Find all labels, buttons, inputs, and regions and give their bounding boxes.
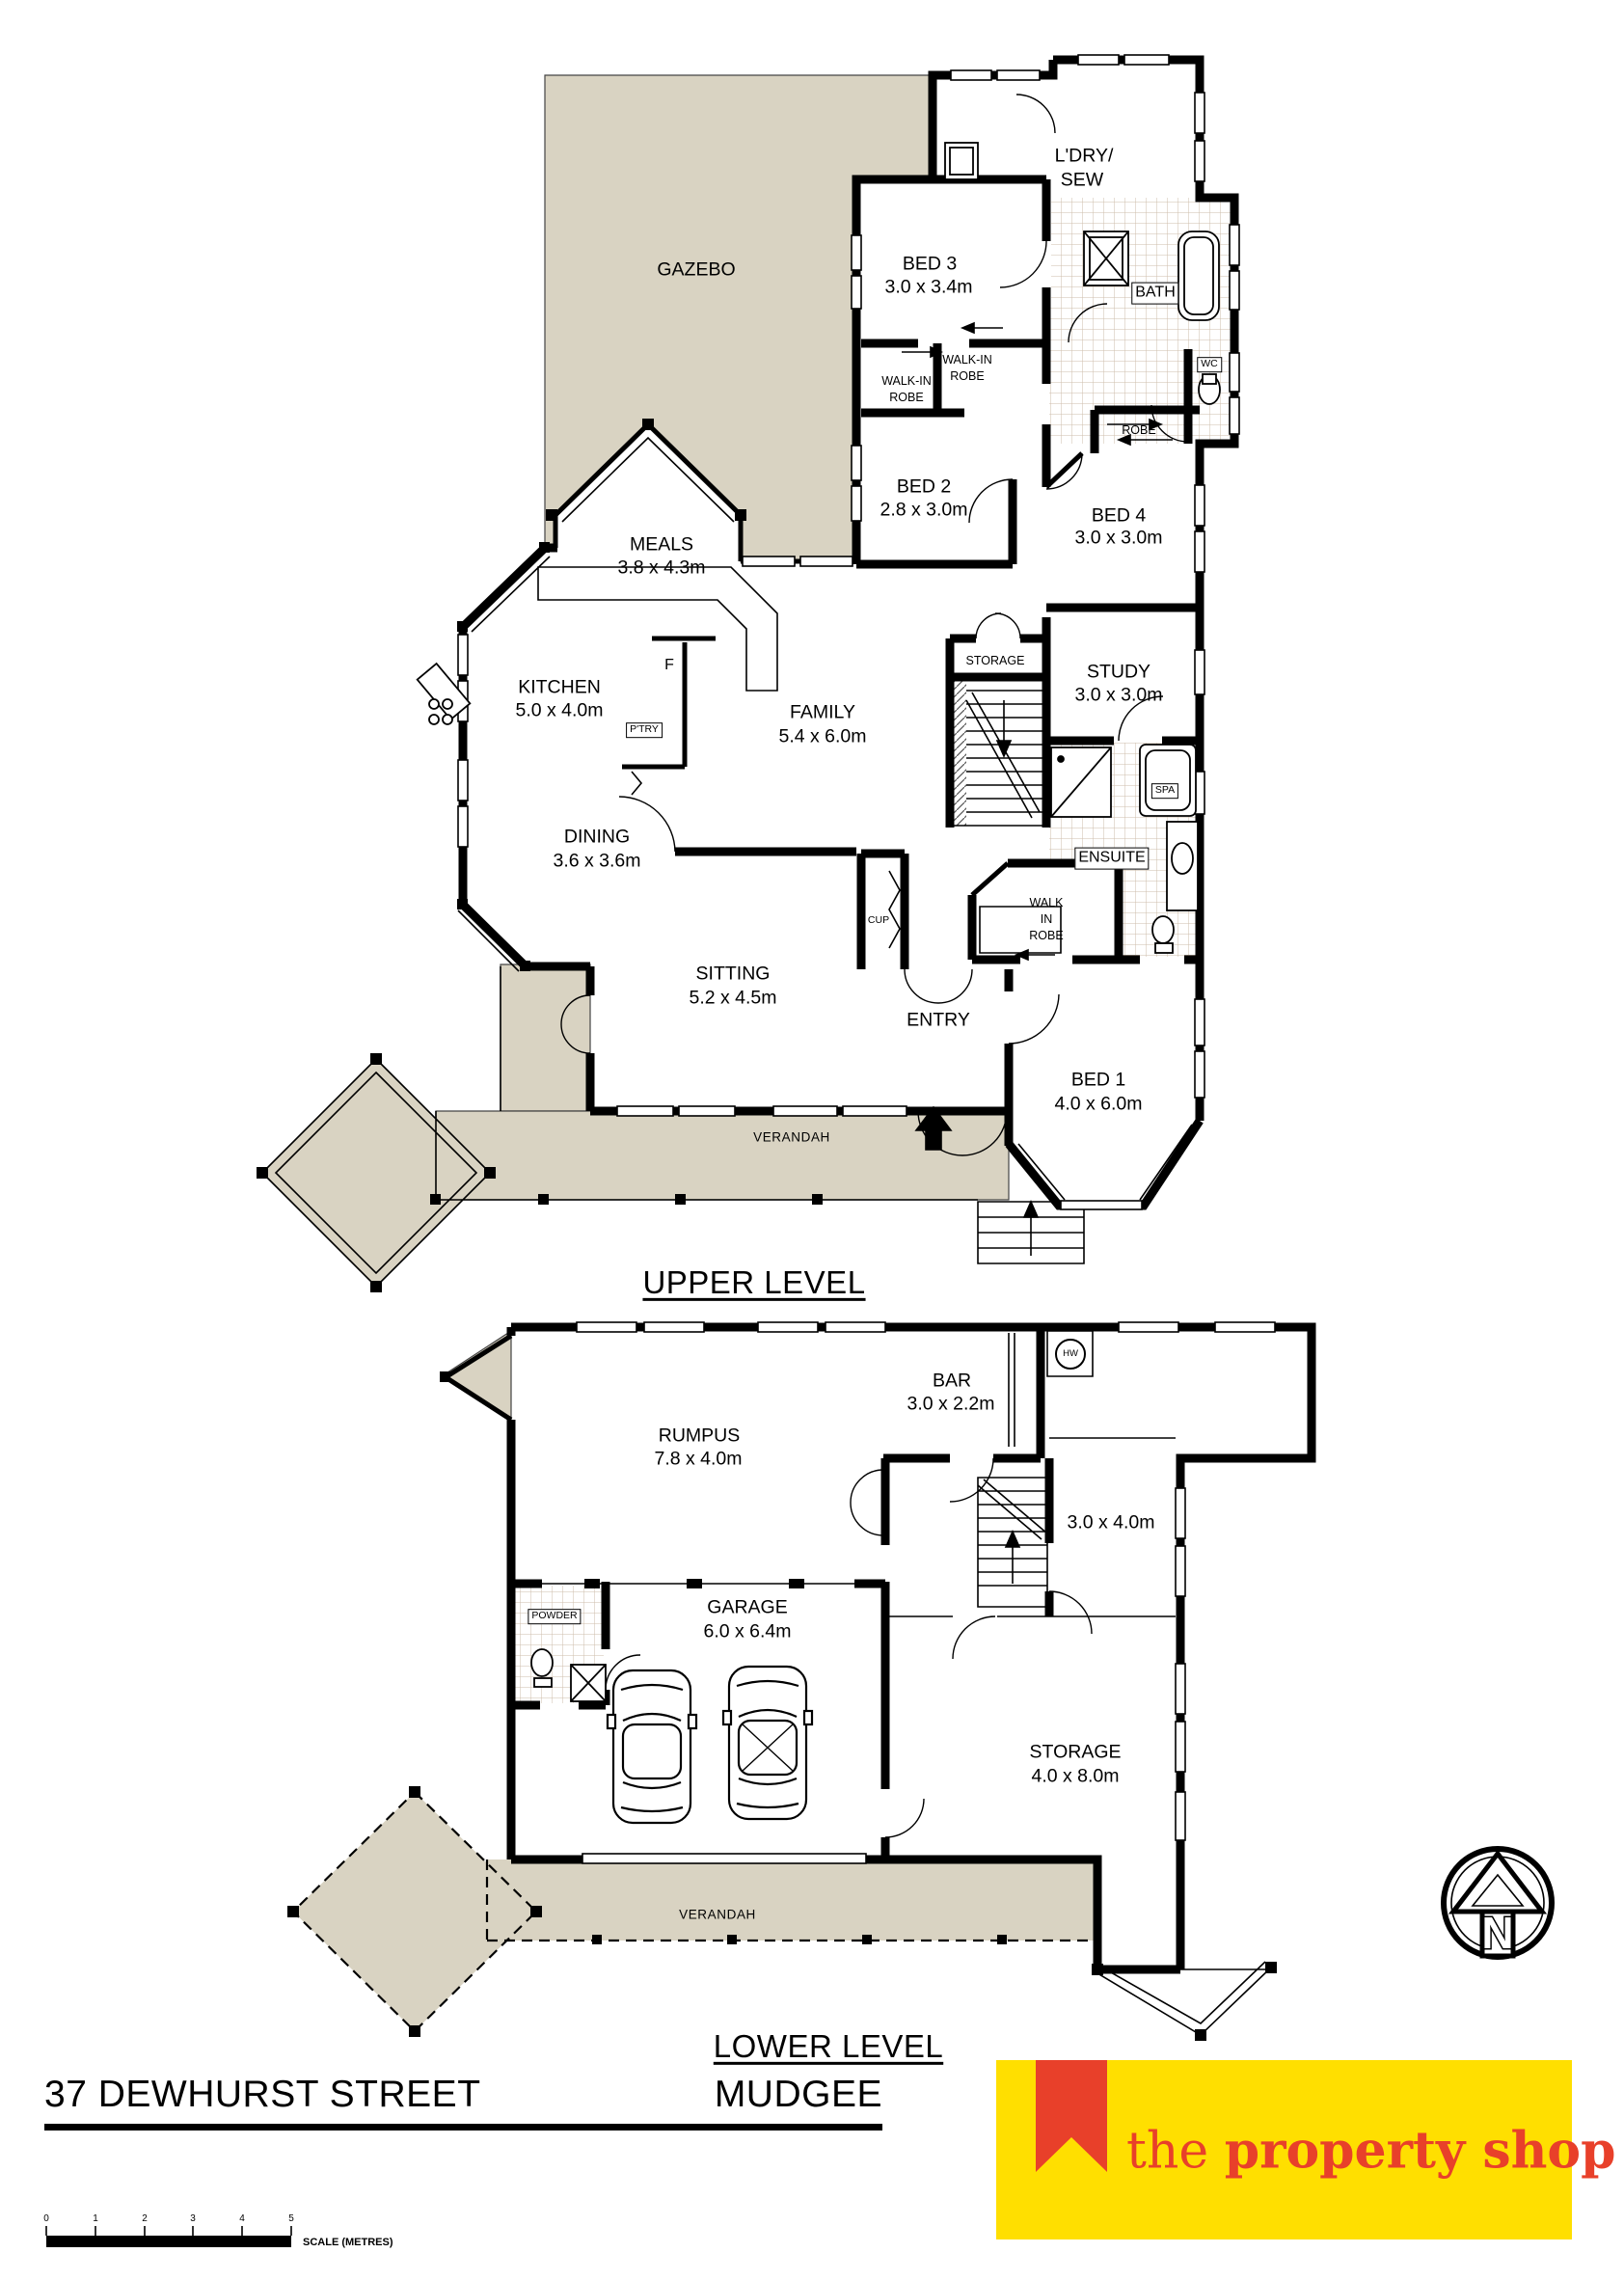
room-dims-bed4: 3.0 x 3.0m xyxy=(1074,528,1162,548)
room-label-ensuite: ENSUITE xyxy=(1074,848,1149,870)
brand-wordmark: the property shop xyxy=(1126,2122,1615,2181)
room-dims-sitting: 5.2 x 4.5m xyxy=(689,988,776,1008)
room-label-bed3: BED 3 xyxy=(903,254,957,274)
room-label-verandah-upper: VERANDAH xyxy=(753,1131,830,1146)
room-label-walkin-robe-bed2-line2: ROBE xyxy=(889,392,923,405)
scale-tick-2: 2 xyxy=(142,2213,148,2224)
room-label-dining: DINING xyxy=(564,827,630,847)
room-label-walkin-robe-bed3-line1: WALK-IN xyxy=(942,354,992,367)
room-dims-study: 3.0 x 3.0m xyxy=(1074,685,1162,705)
room-label-entry: ENTRY xyxy=(907,1010,970,1030)
room-label-bath: BATH xyxy=(1131,283,1178,305)
scale-tick-1: 1 xyxy=(93,2213,98,2224)
scale-caption: SCALE (METRES) xyxy=(303,2237,393,2248)
room-dims-lower-room: 3.0 x 4.0m xyxy=(1067,1512,1154,1533)
room-label-wc: WC xyxy=(1197,357,1222,372)
room-label-bed4: BED 4 xyxy=(1092,505,1146,526)
room-label-walkin-robe-bed1-line1: WALK xyxy=(1030,897,1064,910)
room-dims-dining: 3.6 x 3.6m xyxy=(553,851,640,871)
room-label-laundry-line2: SEW xyxy=(1061,170,1103,190)
room-label-walkin-robe-bed3-line2: ROBE xyxy=(950,370,984,384)
scale-tick-0: 0 xyxy=(43,2213,49,2224)
room-label-storage-lower: STORAGE xyxy=(1030,1742,1122,1762)
north-letter: N xyxy=(1481,1908,1513,1958)
label-hot-water: HW xyxy=(1063,1349,1078,1359)
room-dims-rumpus: 7.8 x 4.0m xyxy=(654,1449,742,1469)
label-spa: SPA xyxy=(1151,783,1178,799)
footer-graphics xyxy=(44,2124,882,2247)
room-dims-kitchen: 5.0 x 4.0m xyxy=(515,700,603,720)
room-label-sitting: SITTING xyxy=(696,964,771,984)
room-dims-storage-lower: 4.0 x 8.0m xyxy=(1031,1766,1119,1786)
scale-tick-5: 5 xyxy=(288,2213,294,2224)
scale-tick-4: 4 xyxy=(239,2213,245,2224)
lower-level-title: LOWER LEVEL xyxy=(714,2029,943,2064)
room-label-study: STUDY xyxy=(1087,662,1150,682)
room-dims-family: 5.4 x 6.0m xyxy=(778,726,866,746)
stairs-hatch xyxy=(953,677,966,826)
room-dims-bed1: 4.0 x 6.0m xyxy=(1054,1094,1142,1114)
room-label-family: FAMILY xyxy=(790,702,855,722)
address-text: 37 DEWHURST STREET xyxy=(44,2074,481,2116)
room-dims-garage: 6.0 x 6.4m xyxy=(703,1621,791,1642)
label-fridge: F xyxy=(664,657,674,674)
room-label-gazebo: GAZEBO xyxy=(657,259,735,280)
floorplan-page: N GAZEBO L'DRY/ SEW BED 3 3.0 x 3.4m WAL… xyxy=(0,0,1624,2280)
scale-tick-3: 3 xyxy=(190,2213,196,2224)
room-dims-bed2: 2.8 x 3.0m xyxy=(880,500,967,520)
room-label-powder: POWDER xyxy=(528,1609,581,1624)
room-label-rumpus: RUMPUS xyxy=(659,1425,741,1446)
room-label-kitchen: KITCHEN xyxy=(518,677,601,697)
room-dims-meals: 3.8 x 4.3m xyxy=(617,557,705,578)
room-label-bed2: BED 2 xyxy=(897,476,951,497)
upper-level-title: UPPER LEVEL xyxy=(642,1265,865,1300)
room-dims-bar: 3.0 x 2.2m xyxy=(907,1394,994,1414)
room-label-pantry: P'TRY xyxy=(626,722,663,738)
town-text: MUDGEE xyxy=(715,2074,882,2116)
room-dims-bed3: 3.0 x 3.4m xyxy=(884,277,972,297)
room-label-walkin-robe-bed1-line3: ROBE xyxy=(1029,930,1063,943)
room-label-laundry-line1: L'DRY/ xyxy=(1055,146,1114,166)
car-icon xyxy=(608,1670,696,1823)
brand-property-shop: property shop xyxy=(1225,2122,1616,2181)
room-label-robe-bed4: ROBE xyxy=(1122,424,1155,438)
room-label-walkin-robe-bed1-line2: IN xyxy=(1041,913,1053,927)
room-label-bed1: BED 1 xyxy=(1071,1070,1125,1090)
brand-the: the xyxy=(1126,2123,1225,2181)
room-label-walkin-robe-bed2-line1: WALK-IN xyxy=(881,375,932,389)
north-arrow-icon: N xyxy=(1444,1849,1552,1958)
room-label-meals: MEALS xyxy=(630,534,693,555)
label-cupboard: CUP xyxy=(868,915,889,927)
room-label-garage: GARAGE xyxy=(707,1597,787,1617)
room-label-storage-upper: STORAGE xyxy=(966,655,1025,668)
room-label-bar: BAR xyxy=(933,1371,971,1391)
room-label-verandah-lower: VERANDAH xyxy=(679,1909,756,1923)
car-icon xyxy=(723,1667,812,1819)
